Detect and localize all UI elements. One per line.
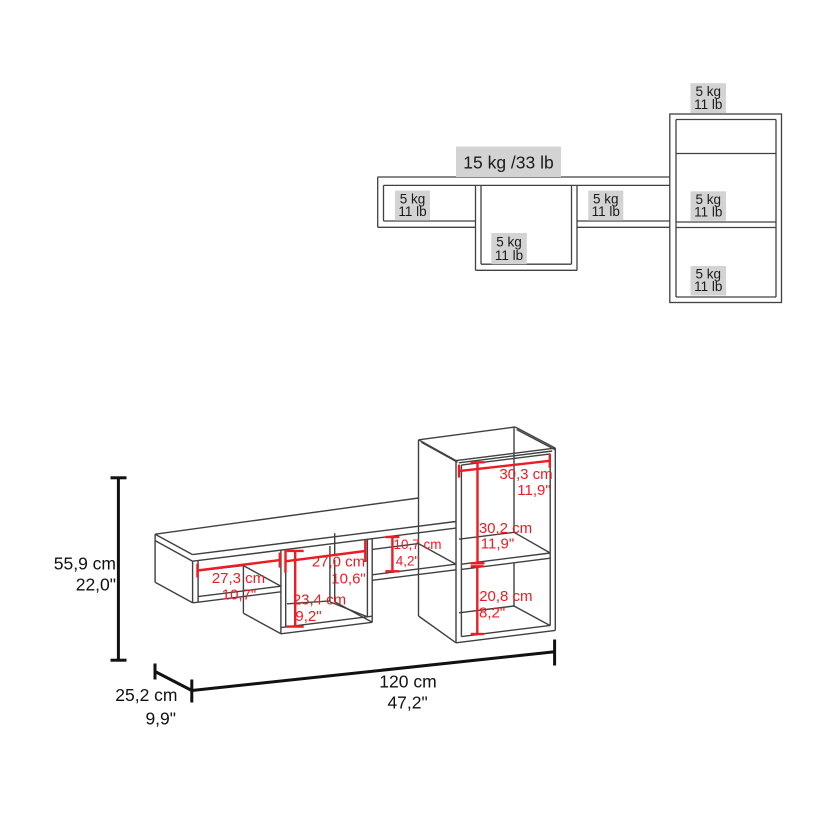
- svg-text:11 lb: 11 lb: [398, 204, 426, 219]
- svg-text:8,2": 8,2": [479, 605, 505, 622]
- svg-text:11 lb: 11 lb: [694, 97, 722, 112]
- svg-text:11,9": 11,9": [481, 536, 514, 553]
- svg-text:30,3 cm: 30,3 cm: [499, 466, 552, 483]
- svg-text:10,7": 10,7": [222, 587, 257, 604]
- svg-text:47,2": 47,2": [387, 693, 427, 713]
- svg-text:10,7 cm: 10,7 cm: [393, 537, 441, 552]
- svg-text:11 lb: 11 lb: [694, 279, 722, 294]
- svg-text:10,6": 10,6": [331, 571, 366, 588]
- svg-text:11 lb: 11 lb: [592, 204, 620, 219]
- svg-text:25,2 cm: 25,2 cm: [115, 685, 177, 705]
- svg-text:11,9": 11,9": [517, 482, 550, 499]
- svg-text:9,2": 9,2": [295, 608, 321, 625]
- svg-text:11 lb: 11 lb: [495, 248, 523, 263]
- svg-text:27,0 cm: 27,0 cm: [312, 554, 365, 571]
- svg-text:4,2": 4,2": [396, 554, 420, 569]
- svg-text:9,9": 9,9": [145, 709, 176, 729]
- svg-text:27,3 cm: 27,3 cm: [212, 570, 265, 587]
- svg-text:55,9 cm: 55,9 cm: [54, 554, 116, 574]
- svg-text:120 cm: 120 cm: [379, 671, 436, 691]
- svg-text:11 lb: 11 lb: [694, 204, 722, 219]
- svg-text:23,4 cm: 23,4 cm: [293, 592, 346, 609]
- svg-text:22,0": 22,0": [76, 575, 116, 595]
- svg-text:15 kg /33 lb: 15 kg /33 lb: [463, 152, 553, 172]
- svg-text:20,8 cm: 20,8 cm: [479, 588, 532, 605]
- svg-text:30,2 cm: 30,2 cm: [479, 520, 532, 537]
